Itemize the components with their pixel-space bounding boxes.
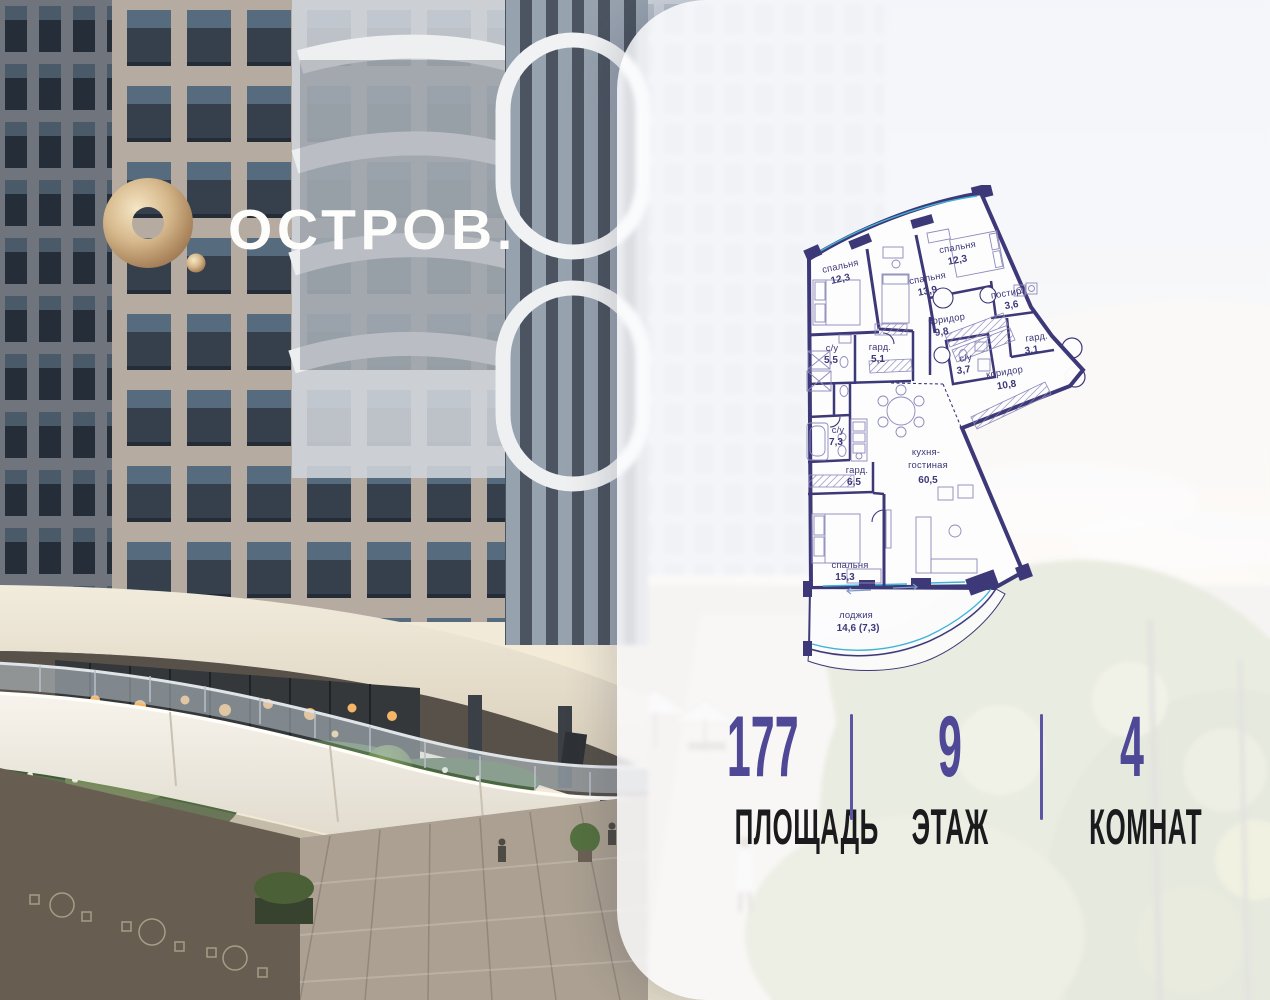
stat-floor: 9 ЭТАЖ — [855, 704, 1045, 852]
room-area: 14,6 (7,3) — [837, 623, 880, 634]
stat-rooms: 4 КОМНАТ — [1037, 704, 1227, 852]
room-area: 6,5 — [847, 477, 861, 488]
room-label: с/у — [959, 351, 973, 364]
room-area: 3,7 — [956, 364, 972, 377]
room-area: 5,5 — [824, 355, 838, 366]
stat-area-label: ПЛОЩАДЬ — [735, 802, 879, 852]
stat-floor-label: ЭТАЖ — [911, 802, 988, 852]
room-label: гард. — [869, 341, 892, 352]
room-area: 15,3 — [835, 572, 855, 583]
building-facades — [0, 0, 648, 665]
info-panel: спальня 12,3 спальня 13,9 спальня 12,3 п… — [617, 0, 1270, 1000]
room-label: спальня — [832, 559, 869, 570]
room-area: 60,5 — [918, 475, 938, 486]
stat-floor-value: 9 — [938, 704, 962, 790]
room-label: лоджия — [839, 609, 873, 620]
stats-divider — [850, 714, 853, 820]
room-label: с/у — [826, 342, 839, 353]
room-area: 7,3 — [829, 437, 843, 448]
room-label: кухня- — [912, 446, 940, 457]
room-label: с/у — [832, 424, 845, 435]
stat-area-value: 177 — [727, 704, 799, 790]
floor-plan: спальня 12,3 спальня 13,9 спальня 12,3 п… — [795, 185, 1155, 700]
logo-dot-icon — [187, 254, 206, 273]
stat-rooms-value: 4 — [1120, 704, 1144, 790]
promo-card: ОСТРОВ. — [0, 0, 1270, 1000]
room-label: гард. — [846, 464, 869, 475]
logo-text: ОСТРОВ. — [228, 198, 517, 262]
stats-divider — [1040, 714, 1043, 820]
stat-area: 177 ПЛОЩАДЬ — [668, 704, 858, 852]
stat-rooms-label: КОМНАТ — [1089, 802, 1202, 852]
room-area: 3,6 — [1004, 299, 1020, 312]
room-area: 5,1 — [871, 354, 885, 365]
logo-ring-icon — [103, 178, 193, 268]
room-area: 9,8 — [934, 326, 950, 339]
room-area: 3,1 — [1024, 344, 1040, 357]
room-label: гостиная — [908, 459, 948, 470]
